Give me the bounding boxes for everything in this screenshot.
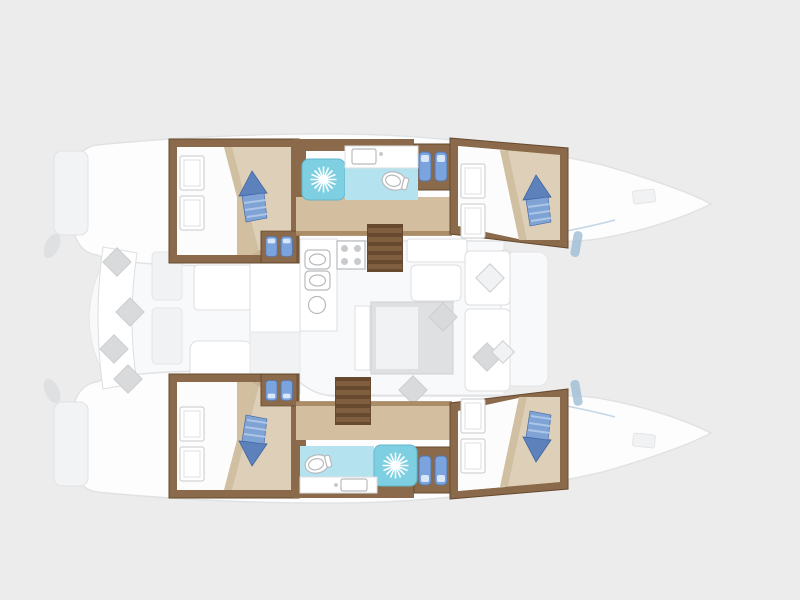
port-swim-platform — [54, 151, 88, 235]
sink-icon — [341, 479, 367, 491]
starboard-companionway-stairs — [335, 377, 371, 425]
catamaran-floor-plan — [0, 0, 800, 600]
catamaran-floor-plan-canvas — [0, 0, 800, 600]
port-companionway-stairs — [367, 224, 403, 272]
forward-cockpit — [504, 252, 548, 386]
sink-icon — [305, 250, 330, 269]
bow-hatch-icon — [632, 189, 655, 204]
stove-burners-icon — [337, 241, 365, 269]
cockpit-table — [194, 265, 256, 310]
bow-hatch-icon — [632, 433, 655, 448]
salon-bench-left — [355, 306, 370, 370]
chart-table — [407, 239, 467, 262]
forward-seat — [411, 265, 461, 301]
sink-icon — [352, 149, 376, 164]
sink-icon — [305, 271, 330, 290]
starboard-head — [300, 445, 417, 493]
starboard-swim-platform — [54, 402, 88, 486]
